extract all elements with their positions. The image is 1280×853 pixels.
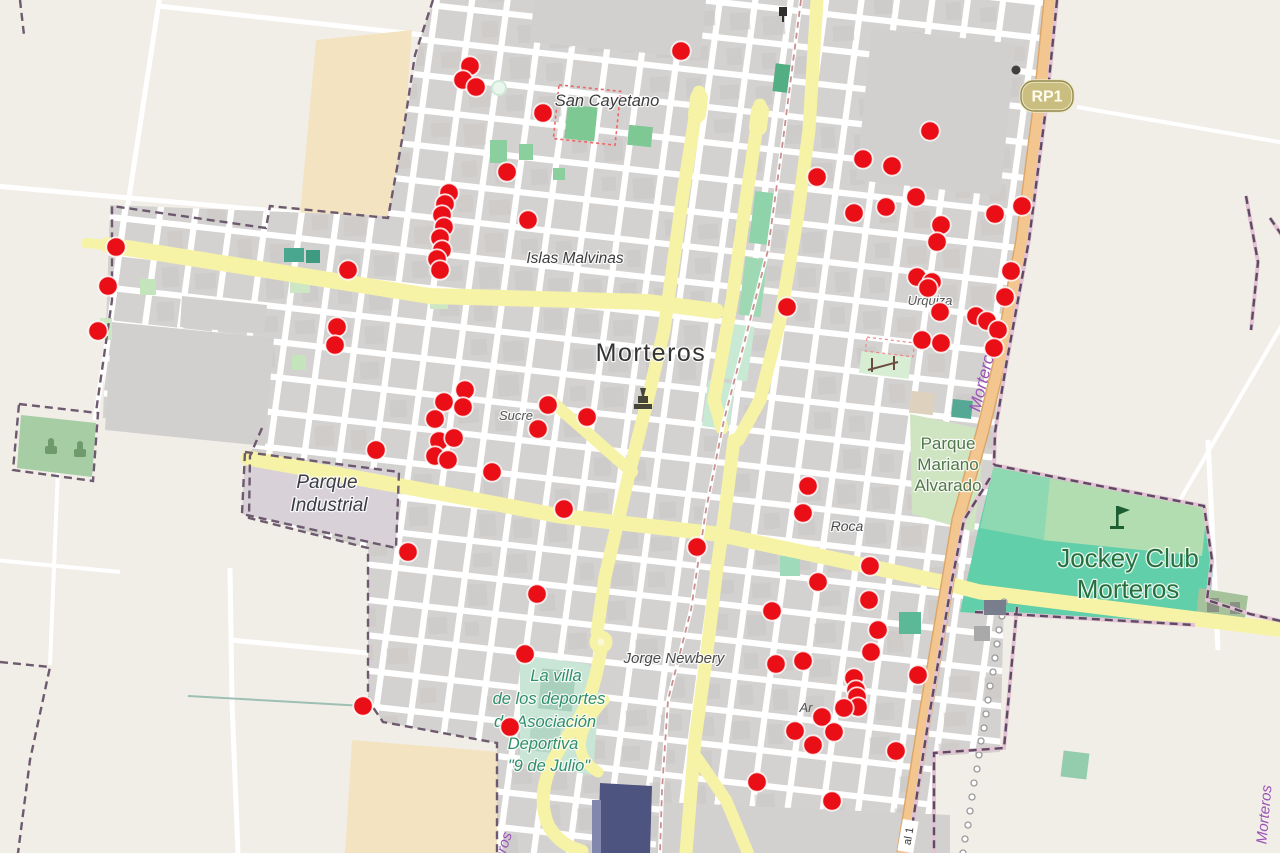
svg-text:"9 de Julio": "9 de Julio" — [508, 757, 591, 775]
svg-text:Roca: Roca — [831, 518, 864, 534]
svg-text:Jockey Club: Jockey Club — [1057, 543, 1199, 573]
svg-text:Parque: Parque — [296, 472, 357, 493]
svg-text:de los deportes: de los deportes — [493, 690, 606, 708]
svg-text:Islas Malvinas: Islas Malvinas — [526, 250, 624, 267]
svg-text:Industrial: Industrial — [290, 495, 368, 516]
svg-text:Alvarado: Alvarado — [914, 476, 981, 495]
svg-text:RP1: RP1 — [1031, 89, 1062, 106]
svg-text:Jorge Newbery: Jorge Newbery — [623, 650, 726, 667]
svg-text:Parque: Parque — [921, 434, 976, 453]
svg-text:Deportiva: Deportiva — [508, 735, 579, 753]
svg-text:Morteros: Morteros — [596, 339, 707, 367]
svg-text:Mariano: Mariano — [917, 455, 978, 474]
svg-text:San Cayetano: San Cayetano — [555, 92, 660, 110]
svg-text:Sucre: Sucre — [499, 408, 533, 423]
svg-text:Ar: Ar — [799, 700, 814, 715]
svg-text:La villa: La villa — [530, 667, 581, 685]
svg-text:Morteros: Morteros — [1077, 574, 1180, 604]
